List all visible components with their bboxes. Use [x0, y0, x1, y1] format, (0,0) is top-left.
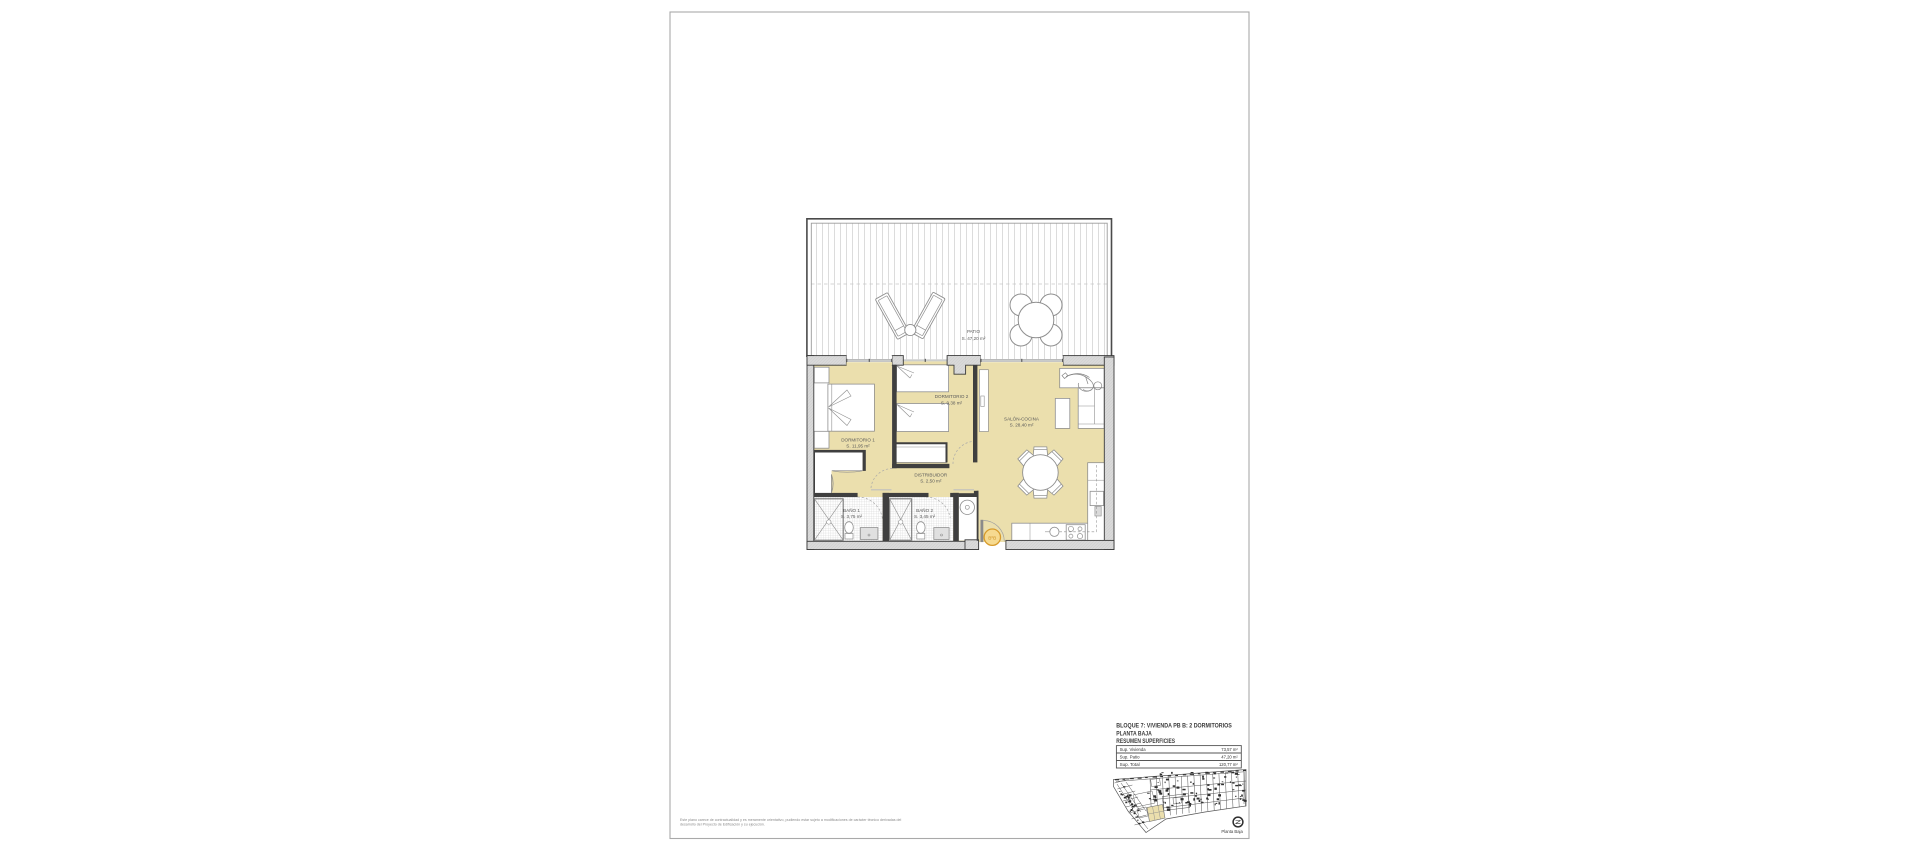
svg-text:Sup. Total: Sup. Total	[1120, 762, 1140, 767]
svg-text:Sup. Vivienda: Sup. Vivienda	[1120, 747, 1147, 752]
svg-text:Planta Baja: Planta Baja	[1221, 829, 1243, 834]
svg-text:S. 11,95 m²: S. 11,95 m²	[846, 444, 870, 449]
svg-text:desarrollo del Proyecto de Edi: desarrollo del Proyecto de Edificación y…	[680, 823, 765, 827]
svg-text:120,77 m²: 120,77 m²	[1219, 762, 1238, 767]
svg-text:DORMITORIO 1: DORMITORIO 1	[841, 437, 875, 442]
svg-text:Sup. Patio: Sup. Patio	[1120, 755, 1141, 760]
svg-text:PATIO: PATIO	[967, 329, 981, 334]
svg-text:73,57 m²: 73,57 m²	[1221, 747, 1238, 752]
svg-text:S. 3,45 m²: S. 3,45 m²	[914, 514, 936, 519]
svg-text:PLANTA BAJA: PLANTA BAJA	[1116, 730, 1152, 737]
svg-text:BLOQUE 7: VIVIENDA PB B: 2 DOR: BLOQUE 7: VIVIENDA PB B: 2 DORMITORIOS	[1116, 723, 1232, 730]
svg-text:Este plano carece de contractu: Este plano carece de contractualidad y e…	[680, 818, 902, 822]
svg-text:BAÑO 1: BAÑO 1	[843, 507, 860, 513]
svg-text:N: N	[1234, 819, 1241, 824]
svg-text:BºB: BºB	[988, 535, 996, 541]
svg-text:S. 9,38 m²: S. 9,38 m²	[941, 401, 963, 406]
svg-text:SALÓN-COCINA: SALÓN-COCINA	[1004, 415, 1040, 421]
svg-text:DORMITORIO 2: DORMITORIO 2	[935, 394, 969, 399]
svg-text:47,20 m²: 47,20 m²	[1221, 755, 1238, 760]
svg-text:S. 28,40 m²: S. 28,40 m²	[1010, 423, 1034, 428]
svg-text:RESUMEN SUPERFICIES: RESUMEN SUPERFICIES	[1116, 738, 1175, 745]
svg-text:S. 3,75 m²: S. 3,75 m²	[841, 514, 863, 519]
svg-text:BAÑO 2: BAÑO 2	[916, 507, 933, 513]
svg-text:S. 47,20 m²: S. 47,20 m²	[962, 336, 986, 341]
svg-text:S. 2,50 m²: S. 2,50 m²	[920, 479, 942, 484]
svg-text:DISTRIBUIDOR: DISTRIBUIDOR	[914, 472, 948, 477]
